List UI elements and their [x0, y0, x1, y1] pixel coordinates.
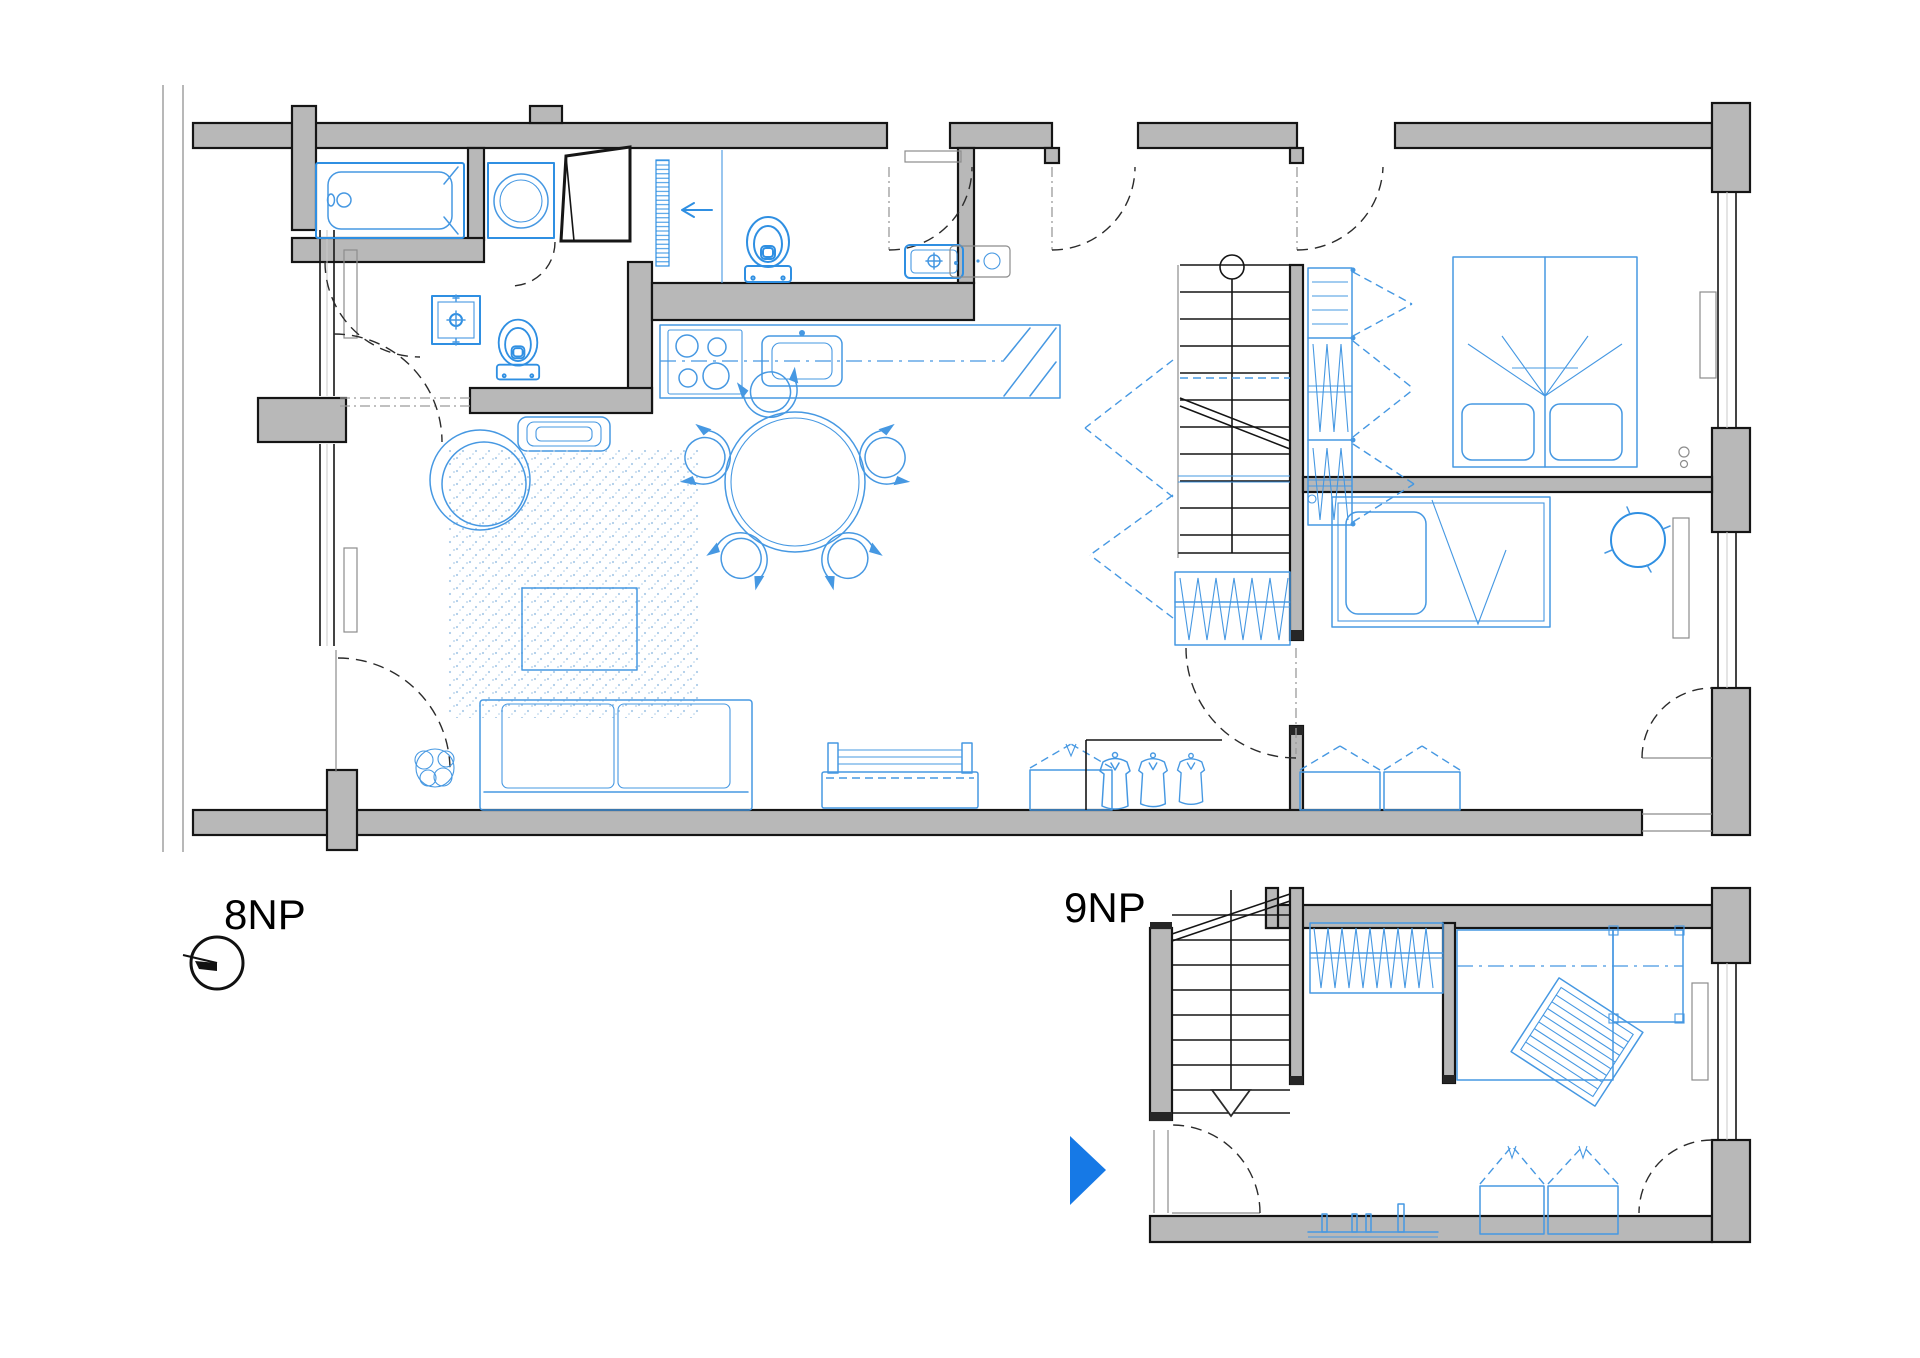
floor-plan-canvas: 8NP 9NP: [0, 0, 1920, 1358]
desk-chair: [1605, 507, 1670, 572]
stair-treads: [1180, 292, 1290, 535]
bench: [822, 743, 978, 808]
hanging-clothes: [1178, 753, 1205, 804]
closet-door-swings: [1085, 360, 1173, 618]
dining-area: [678, 365, 912, 592]
single-bed: [1332, 497, 1550, 627]
hanger-zigzag: [1313, 344, 1348, 432]
entry-arrow-icon: [1070, 1136, 1106, 1205]
drawing-sheet: 8NP 9NP: [0, 0, 1920, 1358]
left-window-band: [320, 230, 450, 772]
dining-chair: [853, 423, 912, 493]
hanger-zigzag: [1314, 928, 1433, 988]
door-swing: [334, 334, 442, 442]
plant: [415, 749, 454, 787]
cooktop: [668, 330, 742, 394]
shower-screen: [561, 147, 630, 241]
down-arrow: [1212, 1090, 1250, 1116]
kitchen: [660, 325, 1060, 398]
living-room: [415, 430, 752, 810]
window-handle: [1679, 447, 1689, 457]
entry-zone: [518, 246, 1010, 451]
toilet: [497, 320, 539, 380]
radiator: [1673, 518, 1689, 638]
direction-arrow: [682, 203, 712, 217]
entry-step-mat: [518, 417, 610, 451]
radiator: [344, 250, 357, 338]
bathtub: [316, 163, 464, 238]
door-swing: [325, 262, 420, 357]
storage-boxes: [1300, 746, 1460, 810]
radiator: [1692, 983, 1708, 1080]
entry-furniture-row: [822, 740, 1222, 810]
wc-sink: [432, 295, 480, 345]
sofa-bed: [1457, 926, 1684, 1080]
bathroom-2: [656, 150, 963, 283]
annotations: 8NP 9NP: [183, 884, 1146, 1205]
wall-pier: [292, 106, 316, 230]
window-handle: [1681, 461, 1688, 468]
double-bed: [1453, 257, 1637, 467]
hall-wardrobe-under-stairs: [1085, 360, 1290, 645]
dining-table: [725, 412, 865, 552]
radiator: [1700, 292, 1716, 378]
hanging-clothes: [1100, 753, 1130, 810]
dining-chair: [736, 365, 806, 424]
lounger: [1511, 978, 1643, 1106]
bedroom-2: [1300, 495, 1689, 810]
hanger-zigzag: [1180, 578, 1288, 640]
wall-pier: [327, 770, 357, 850]
washing-machine: [488, 163, 554, 238]
pillow: [1550, 404, 1622, 460]
door-swing: [1186, 648, 1296, 758]
door-swing: [1172, 1125, 1260, 1213]
hanging-clothes: [1139, 753, 1168, 807]
context-building-lines: [163, 85, 183, 852]
transom: [905, 151, 961, 162]
door-swing: [1639, 1140, 1712, 1213]
door-9np-left: [1154, 1125, 1260, 1213]
north-indicator-icon: [183, 937, 243, 989]
stairs-8np: [1178, 255, 1290, 558]
door-swing: [1297, 167, 1383, 250]
dining-chair: [809, 520, 884, 592]
counter-end: [1004, 328, 1056, 396]
pillow: [1462, 404, 1534, 460]
walls-8np: [193, 103, 1750, 850]
radiator-hatched: [656, 160, 669, 266]
door-swing: [511, 242, 555, 286]
door-swing: [1642, 688, 1712, 758]
wall-pier: [530, 106, 562, 123]
floor-plan-8np: [163, 85, 1750, 852]
storage-box: [1030, 744, 1112, 810]
stair-cut-line: [1180, 398, 1290, 449]
floor-plan-9np: [1150, 888, 1750, 1242]
blanket-fold: [1432, 500, 1506, 624]
door-swing: [338, 658, 450, 770]
dining-chair: [705, 520, 780, 592]
radiator: [344, 548, 357, 632]
walk-in-closet: [1310, 923, 1443, 993]
wc-room: [432, 295, 539, 379]
toilet: [745, 217, 791, 282]
sink: [905, 245, 963, 278]
door-swing: [1052, 167, 1135, 250]
floor-label-8np: 8NP: [224, 891, 306, 938]
floor-label-9np: 9NP: [1064, 884, 1146, 931]
rug: [448, 450, 700, 718]
pillow: [1346, 512, 1426, 614]
kitchen-sink: [762, 330, 842, 386]
